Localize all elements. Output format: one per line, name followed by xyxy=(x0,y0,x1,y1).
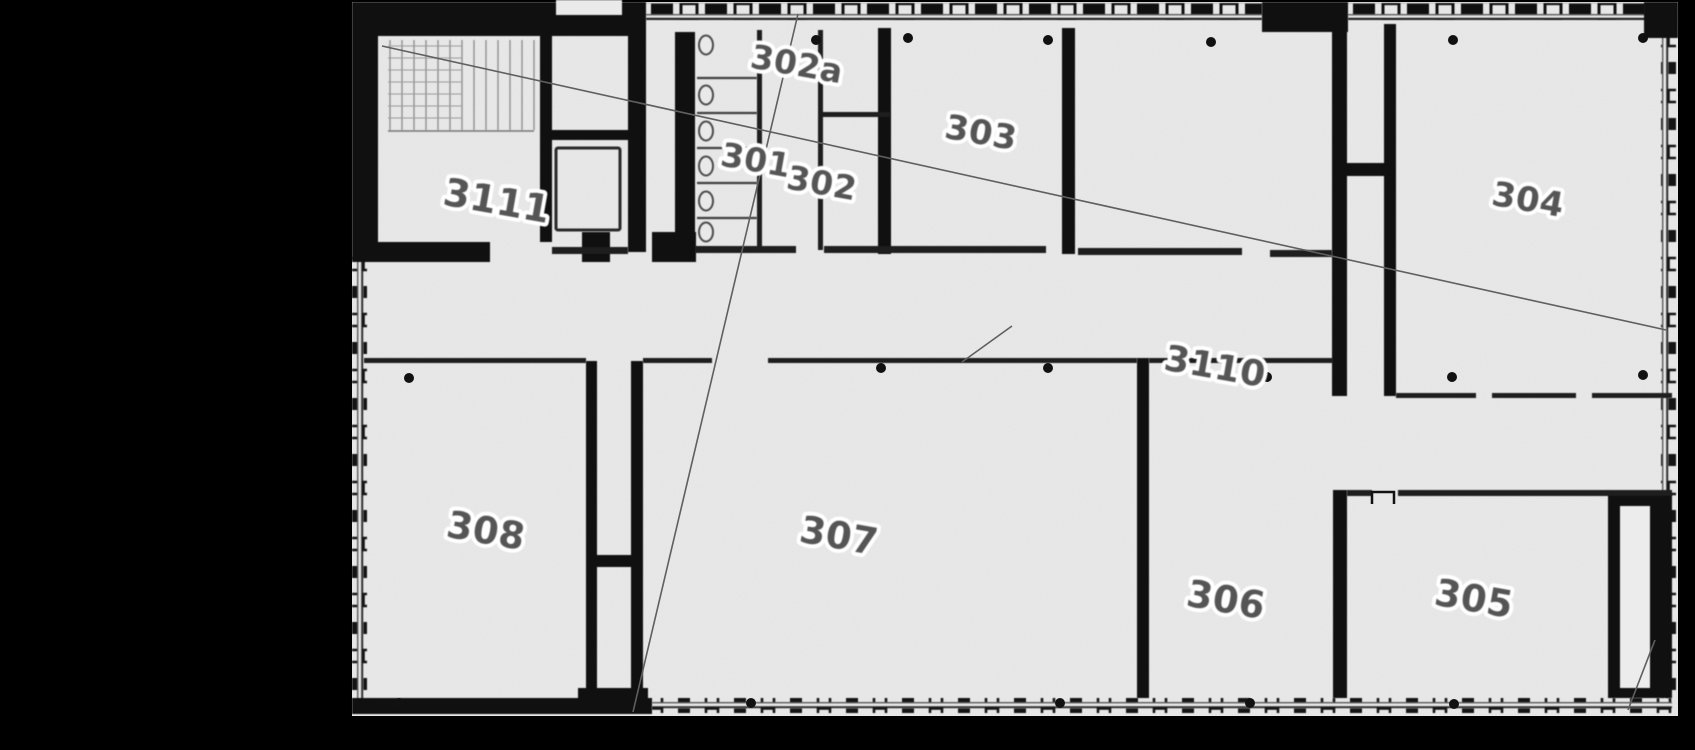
wall-306-305 xyxy=(1333,490,1347,698)
wall-shaft-right xyxy=(1384,24,1396,396)
left-facade xyxy=(352,256,367,702)
wall-elevator-divider xyxy=(540,130,646,140)
wall-304-bottom-3 xyxy=(1592,393,1672,398)
wall-303-east xyxy=(1062,28,1075,254)
wall-302-303 xyxy=(878,28,891,254)
top-facade-right xyxy=(1348,3,1648,20)
wall-elevator-right xyxy=(628,2,646,252)
corridor-top-wall-3 xyxy=(824,246,1046,253)
wall-notch xyxy=(556,0,622,15)
corridor-bottom-wall-2 xyxy=(643,358,712,363)
wall-308-chase-right xyxy=(631,361,643,691)
wall-304-bottom-2 xyxy=(1492,393,1576,398)
wall-chase-divider xyxy=(586,555,643,567)
stair-305-well xyxy=(1620,506,1650,688)
corridor-bottom-wall-1 xyxy=(364,358,586,363)
wall-left-upper xyxy=(352,2,378,262)
floor-plan-viewport: 3111 302a 301 302 303 304 3110 308 307 3… xyxy=(0,0,1695,750)
wall-3111-bottom xyxy=(378,242,490,262)
corridor-top-wall-4 xyxy=(1078,248,1242,255)
wall-shaft-left xyxy=(1332,2,1347,396)
wall-toilet-block xyxy=(675,32,695,250)
wall-305-top-2 xyxy=(1398,490,1672,496)
corridor-bottom-wall-3 xyxy=(768,358,1137,363)
corridor-top-wall-2 xyxy=(695,246,796,253)
floor-plan-image: 3111 302a 301 302 303 304 3110 308 307 3… xyxy=(0,0,1695,750)
wall-304-bottom-1 xyxy=(1396,393,1476,398)
wall-corner-ne xyxy=(1644,2,1678,38)
bottom-facade xyxy=(652,698,1672,713)
wall-shaft-divider xyxy=(1332,163,1396,176)
wall-308-chase-left xyxy=(586,361,597,691)
wall-305-top-1 xyxy=(1347,490,1372,496)
corridor-top-wall-1 xyxy=(552,247,628,254)
wall-302a-bottom xyxy=(820,112,890,117)
wall-307-306 xyxy=(1137,358,1149,698)
top-facade-left xyxy=(646,3,1262,20)
